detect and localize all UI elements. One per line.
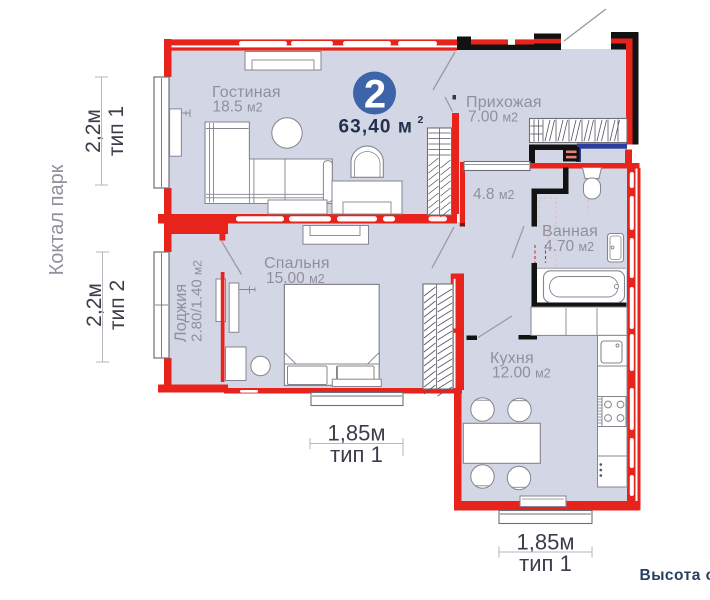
svg-text:4.8 м2: 4.8 м2 bbox=[473, 186, 514, 203]
svg-text:Высота ок: Высота ок bbox=[640, 567, 710, 584]
svg-text:тип 1: тип 1 bbox=[330, 442, 383, 467]
svg-text:2.80/1.40 м2: 2.80/1.40 м2 bbox=[189, 260, 206, 342]
svg-text:тип 1: тип 1 bbox=[519, 551, 572, 576]
svg-text:2: 2 bbox=[418, 114, 424, 126]
svg-text:тип 2: тип 2 bbox=[106, 280, 129, 330]
svg-text:63,40 м: 63,40 м bbox=[339, 117, 414, 138]
svg-text:7.00 м2: 7.00 м2 bbox=[468, 109, 518, 126]
svg-text:2: 2 bbox=[364, 73, 386, 117]
svg-text:Лоджия: Лоджия bbox=[172, 284, 190, 342]
svg-text:тип 1: тип 1 bbox=[105, 106, 128, 156]
svg-text:Коктал парк: Коктал парк bbox=[46, 164, 68, 275]
svg-text:12.00 м2: 12.00 м2 bbox=[492, 365, 551, 382]
svg-text:4.70 м2: 4.70 м2 bbox=[544, 238, 594, 255]
svg-text:15.00 м2: 15.00 м2 bbox=[266, 270, 325, 287]
svg-text:18.5 м2: 18.5 м2 bbox=[213, 99, 263, 116]
